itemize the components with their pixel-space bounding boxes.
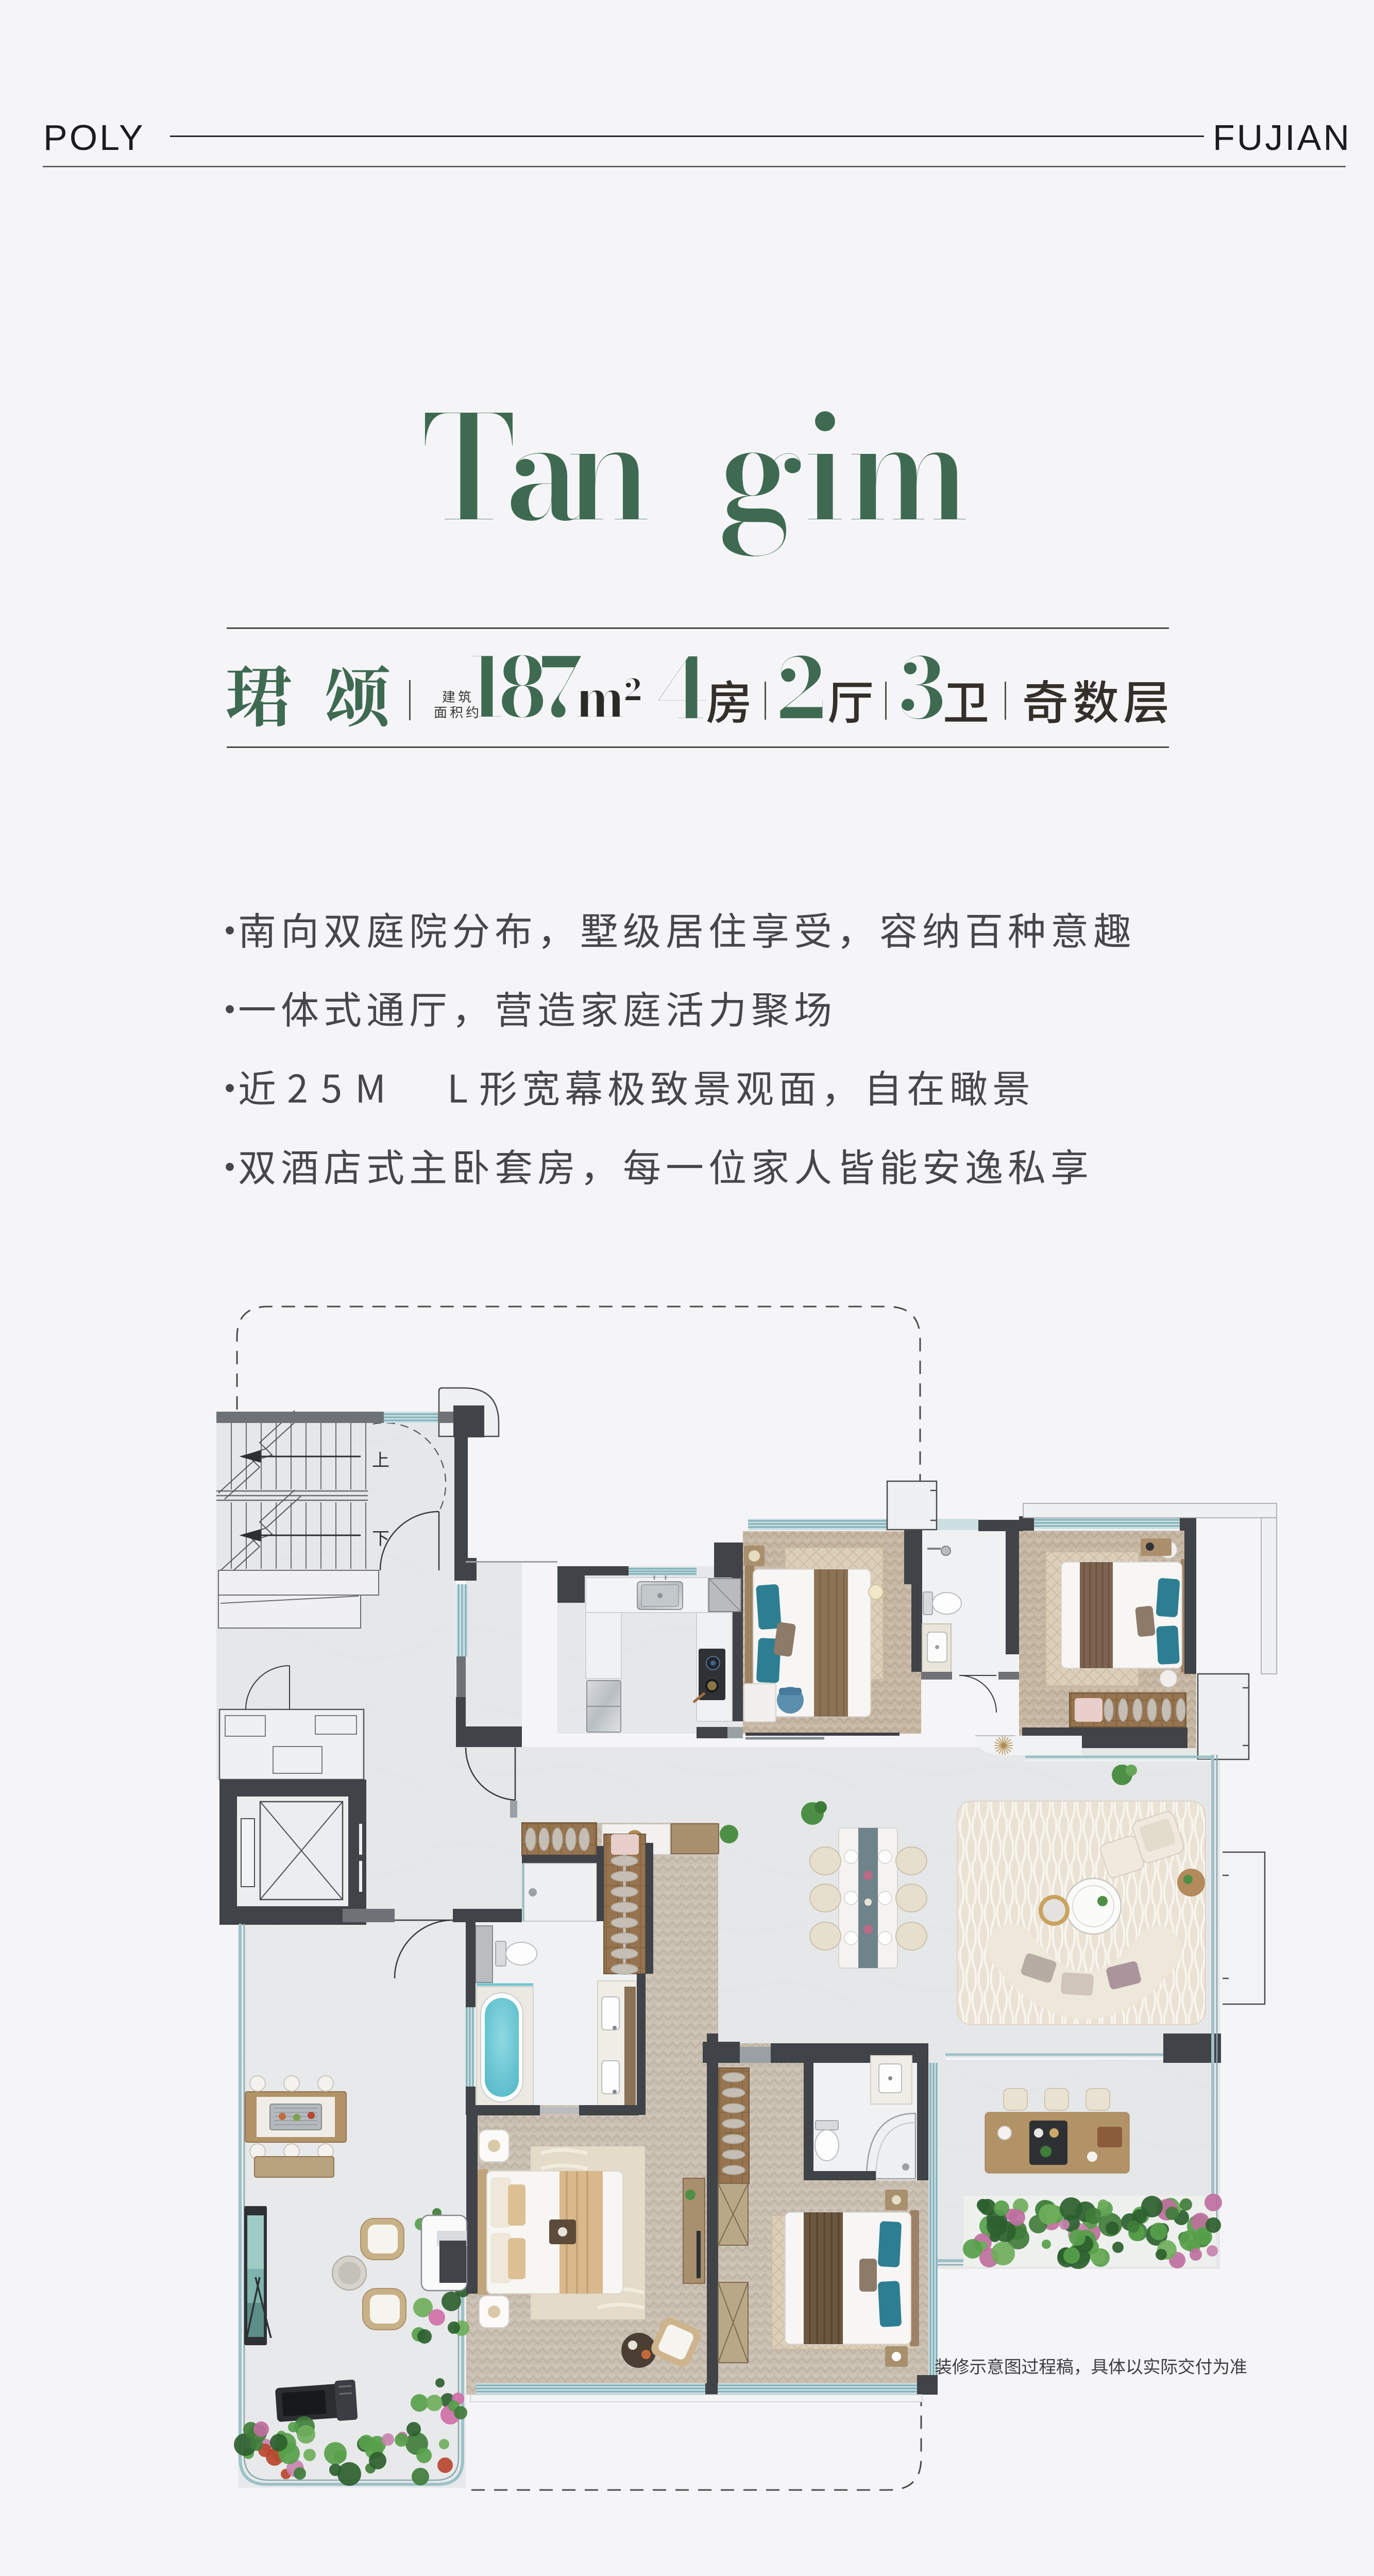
svg-text:FUJIAN: FUJIAN	[1213, 117, 1351, 158]
svg-text:POLY: POLY	[43, 117, 145, 158]
